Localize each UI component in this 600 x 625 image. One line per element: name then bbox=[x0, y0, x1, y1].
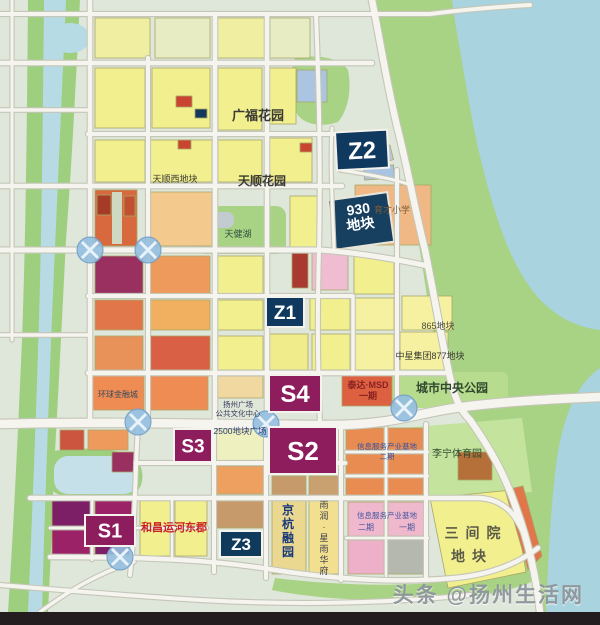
map-label: 李宁体育园 bbox=[432, 447, 482, 460]
map-label: 雨润·星雨华府 bbox=[319, 500, 328, 576]
map-label: 京杭融园 bbox=[282, 502, 294, 559]
zone-badge-S4: S4 bbox=[269, 375, 321, 412]
interchange-icon bbox=[125, 409, 151, 435]
map-label: 2500地块广场 bbox=[214, 426, 267, 436]
map-label: 天顺花园 bbox=[238, 173, 286, 188]
watermark: 头条 @扬州生活网 bbox=[393, 579, 584, 609]
map-label: 地块 bbox=[451, 548, 493, 564]
zone-badge-text-S4: S4 bbox=[280, 381, 310, 408]
zone-badge-Z3: Z3 bbox=[220, 531, 262, 557]
zone-badge-Z1: Z1 bbox=[266, 297, 304, 327]
zone-badge-S2: S2 bbox=[269, 427, 337, 474]
map-label: 二期 bbox=[358, 523, 374, 532]
interchange-icon bbox=[391, 395, 417, 421]
map-label: 天顺西地块 bbox=[152, 173, 197, 184]
planning-map: Z2Z1Z3S4S2S3S1 广福花园天顺西地块天顺花园天健湖育才小学930地块… bbox=[0, 0, 600, 625]
zone-badge-text-S3: S3 bbox=[181, 436, 204, 457]
zone-badge-text-Z1: Z1 bbox=[274, 303, 297, 324]
map-label: 育才小学 bbox=[374, 204, 410, 215]
interchange-icon bbox=[107, 544, 133, 570]
zone-badge-S3: S3 bbox=[174, 429, 212, 462]
zone-badge-S1: S1 bbox=[85, 515, 135, 546]
interchange-icon bbox=[77, 237, 103, 263]
map-label: 865地块 bbox=[421, 320, 454, 331]
zone-badge-Z2: Z2 bbox=[335, 130, 389, 171]
map-label: 和昌运河东郡 bbox=[141, 520, 207, 534]
bottom-border-bar bbox=[0, 612, 600, 625]
interchange-icon bbox=[135, 237, 161, 263]
map-label: 城市中央公园 bbox=[416, 380, 488, 395]
zone-badge-text-Z3: Z3 bbox=[231, 535, 251, 554]
zone-badge-text-Z2: Z2 bbox=[347, 137, 376, 165]
map-label: 三间院 bbox=[445, 525, 508, 541]
map-label: 信息服务产业基地 bbox=[357, 510, 417, 520]
zone-badge-text-S2: S2 bbox=[287, 436, 319, 466]
map-label: 一期 bbox=[399, 523, 415, 532]
map-label: 中星集团877地块 bbox=[395, 350, 464, 361]
map-label: 环球金融城 bbox=[98, 389, 138, 399]
zone-badge-text-S1: S1 bbox=[98, 521, 122, 543]
map-label: 天健湖 bbox=[224, 228, 251, 239]
planning-map-page: Z2Z1Z3S4S2S3S1 广福花园天顺西地块天顺花园天健湖育才小学930地块… bbox=[0, 0, 600, 625]
map-label: 广福花园 bbox=[232, 108, 284, 123]
